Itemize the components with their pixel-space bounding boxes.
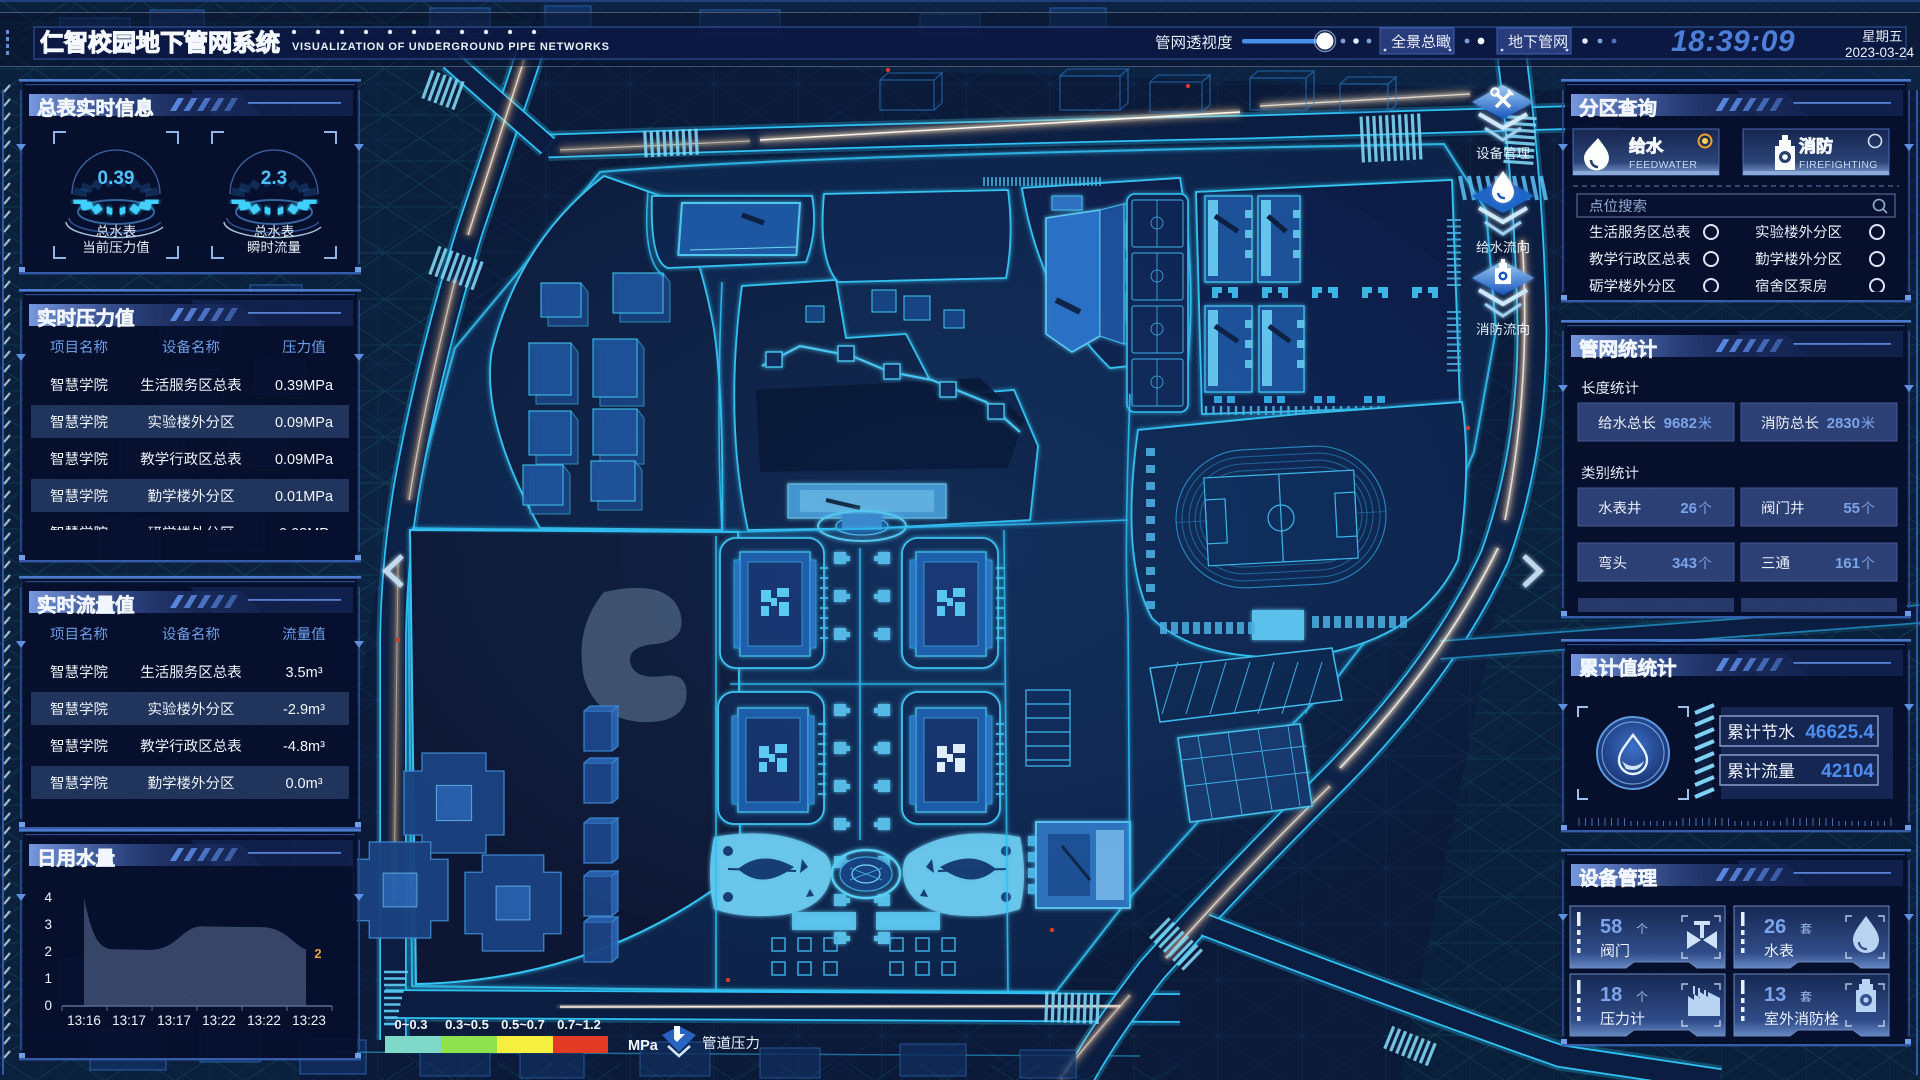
svg-text:0.09MPa: 0.09MPa [275,415,334,431]
svg-text:2.3: 2.3 [261,168,287,189]
svg-text:0.01MPa: 0.01MPa [275,489,334,505]
svg-text:1: 1 [44,971,52,986]
svg-text:343: 343 [1672,555,1697,572]
svg-text:9682: 9682 [1664,415,1697,432]
svg-text:3.5m³: 3.5m³ [285,665,322,681]
svg-text:46625.4: 46625.4 [1805,722,1874,743]
svg-text:0.3~0.5: 0.3~0.5 [445,1017,489,1032]
svg-text:2: 2 [314,946,321,961]
svg-text:VISUALIZATION OF UNDERGROUND: VISUALIZATION OF UNDERGROUND PIPE NETWOR… [292,41,610,53]
svg-text:26: 26 [1764,916,1786,938]
svg-text:0.0m³: 0.0m³ [285,776,322,792]
svg-text:13:23: 13:23 [292,1013,326,1028]
svg-text:3: 3 [44,917,52,932]
svg-text:2023-03-24: 2023-03-24 [1845,45,1915,60]
svg-text:0.39: 0.39 [98,168,135,189]
svg-text:0.7~1.2: 0.7~1.2 [557,1017,601,1032]
svg-text:2: 2 [44,944,52,959]
svg-text:18:39:09: 18:39:09 [1671,25,1795,58]
svg-text:FIREFIGHTING: FIREFIGHTING [1799,159,1878,171]
svg-text:2830: 2830 [1827,415,1860,432]
svg-text:4: 4 [44,890,52,905]
svg-text:13: 13 [1764,984,1786,1006]
svg-text:161: 161 [1835,555,1860,572]
svg-text:0~0.3: 0~0.3 [395,1017,428,1032]
svg-text:42104: 42104 [1821,761,1874,782]
svg-text:MPa: MPa [628,1038,659,1054]
svg-text:0: 0 [44,998,52,1013]
svg-text:-4.8m³: -4.8m³ [283,739,325,755]
svg-text:58: 58 [1600,916,1622,938]
svg-text:0.5~0.7: 0.5~0.7 [501,1017,545,1032]
svg-text:FEEDWATER: FEEDWATER [1629,159,1697,171]
svg-text:13:16: 13:16 [67,1013,101,1028]
svg-text:26: 26 [1680,500,1697,517]
svg-text:13:17: 13:17 [157,1013,191,1028]
svg-text:13:22: 13:22 [202,1013,236,1028]
svg-text:13:17: 13:17 [112,1013,146,1028]
svg-text:13:22: 13:22 [247,1013,281,1028]
svg-text:0.09MPa: 0.09MPa [275,452,334,468]
svg-text:18: 18 [1600,984,1622,1006]
svg-text:55: 55 [1843,500,1860,517]
svg-text:0.39MPa: 0.39MPa [275,378,334,394]
svg-text:-2.9m³: -2.9m³ [283,702,325,718]
